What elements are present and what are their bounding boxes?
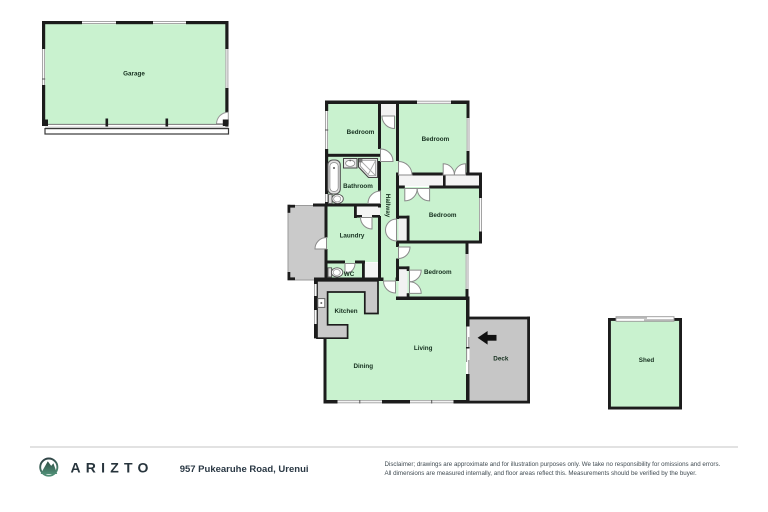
svg-text:Living: Living: [414, 345, 433, 352]
svg-text:WC: WC: [344, 271, 355, 278]
svg-text:Garage: Garage: [123, 71, 145, 78]
svg-text:Bedroom: Bedroom: [429, 212, 457, 219]
svg-text:Kitchen: Kitchen: [334, 308, 357, 315]
svg-text:Shed: Shed: [639, 357, 655, 364]
svg-text:ARIZTO: ARIZTO: [71, 459, 154, 475]
svg-text:Bedroom: Bedroom: [424, 269, 452, 276]
svg-text:Disclaimer; drawings are appro: Disclaimer; drawings are approximate and…: [385, 461, 721, 468]
svg-text:All dimensions are measured in: All dimensions are measured internally, …: [385, 470, 697, 477]
svg-text:Laundry: Laundry: [340, 232, 365, 239]
svg-text:Hallway: Hallway: [384, 194, 391, 218]
svg-text:Bathroom: Bathroom: [343, 183, 373, 190]
svg-text:Deck: Deck: [493, 356, 509, 363]
svg-text:Dining: Dining: [354, 363, 374, 370]
svg-text:Bedroom: Bedroom: [347, 129, 375, 136]
svg-text:Bedroom: Bedroom: [422, 136, 450, 143]
svg-text:957 Pukearuhe Road, Urenui: 957 Pukearuhe Road, Urenui: [180, 464, 309, 475]
